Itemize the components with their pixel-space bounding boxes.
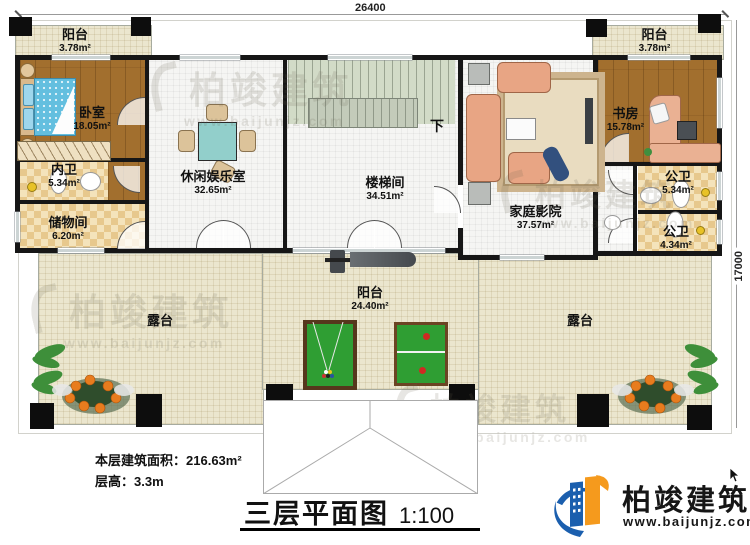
sink xyxy=(80,172,101,191)
plant-cluster-left xyxy=(28,340,158,418)
side-table xyxy=(468,182,491,205)
ping-pong-net xyxy=(397,351,445,353)
floor-drain xyxy=(696,226,705,235)
chair xyxy=(178,130,195,152)
computer-monitor xyxy=(677,121,697,140)
pillar xyxy=(586,19,607,37)
stairs-down-label: 下 xyxy=(430,116,444,136)
desk-return xyxy=(649,143,721,163)
billiards-table xyxy=(303,320,357,390)
dimension-line-right xyxy=(736,20,737,428)
dimension-width: 26400 xyxy=(352,2,389,14)
plant-small xyxy=(644,148,652,156)
side-table xyxy=(468,63,490,85)
paddle xyxy=(419,367,426,374)
ping-pong-table xyxy=(394,322,448,386)
stairs-lower-flight xyxy=(308,98,418,128)
wall xyxy=(598,251,722,256)
game-table xyxy=(198,122,237,161)
tv-screen xyxy=(585,98,593,144)
floor-plan-sheet: 26400 17000 xyxy=(0,0,750,545)
sofa-loveseat xyxy=(497,62,551,93)
floor-area-note: 本层建筑面积：216.63m² xyxy=(95,450,242,469)
floor-drain xyxy=(701,188,710,197)
bed-pillow xyxy=(23,84,34,106)
window xyxy=(15,212,20,242)
bed-pillow xyxy=(23,108,34,130)
plant-cluster-right xyxy=(592,340,722,418)
paddle xyxy=(423,333,430,340)
toilet xyxy=(667,212,684,238)
pillar xyxy=(698,14,721,33)
pillar xyxy=(9,17,32,36)
sheet-title: 三层平面图 1:100 xyxy=(244,492,454,531)
roof-gable-drawing xyxy=(263,400,478,494)
floor-height-note: 层高：3.3m xyxy=(95,471,164,490)
sink xyxy=(604,215,621,230)
window xyxy=(717,220,722,244)
window xyxy=(52,55,110,60)
floor-drain xyxy=(27,182,37,192)
sink xyxy=(640,187,662,204)
sofa xyxy=(466,94,501,182)
wall xyxy=(633,166,637,255)
mouse-cursor xyxy=(729,468,741,484)
dimension-line-top xyxy=(18,14,726,15)
toilet xyxy=(50,168,67,194)
wall xyxy=(145,55,149,252)
gym-barbell xyxy=(325,258,351,262)
chair xyxy=(239,130,256,152)
title-underline xyxy=(240,528,480,531)
window xyxy=(328,55,412,60)
chair xyxy=(206,104,228,121)
gym-bench xyxy=(350,252,416,267)
company-logo-url: www.baijunjz.com xyxy=(623,514,750,529)
wardrobe xyxy=(17,141,111,161)
coffee-table xyxy=(506,118,536,140)
pillar xyxy=(131,17,151,36)
window xyxy=(717,78,722,128)
wall xyxy=(15,200,148,204)
window xyxy=(628,55,690,60)
window xyxy=(58,248,104,253)
wall xyxy=(283,55,287,253)
nightstand xyxy=(20,63,35,78)
window xyxy=(500,255,544,260)
company-logo-icon xyxy=(550,467,618,541)
dimension-height: 17000 xyxy=(733,248,745,285)
wall xyxy=(458,55,463,185)
toilet xyxy=(672,180,690,208)
window xyxy=(180,55,240,60)
window xyxy=(717,172,722,200)
